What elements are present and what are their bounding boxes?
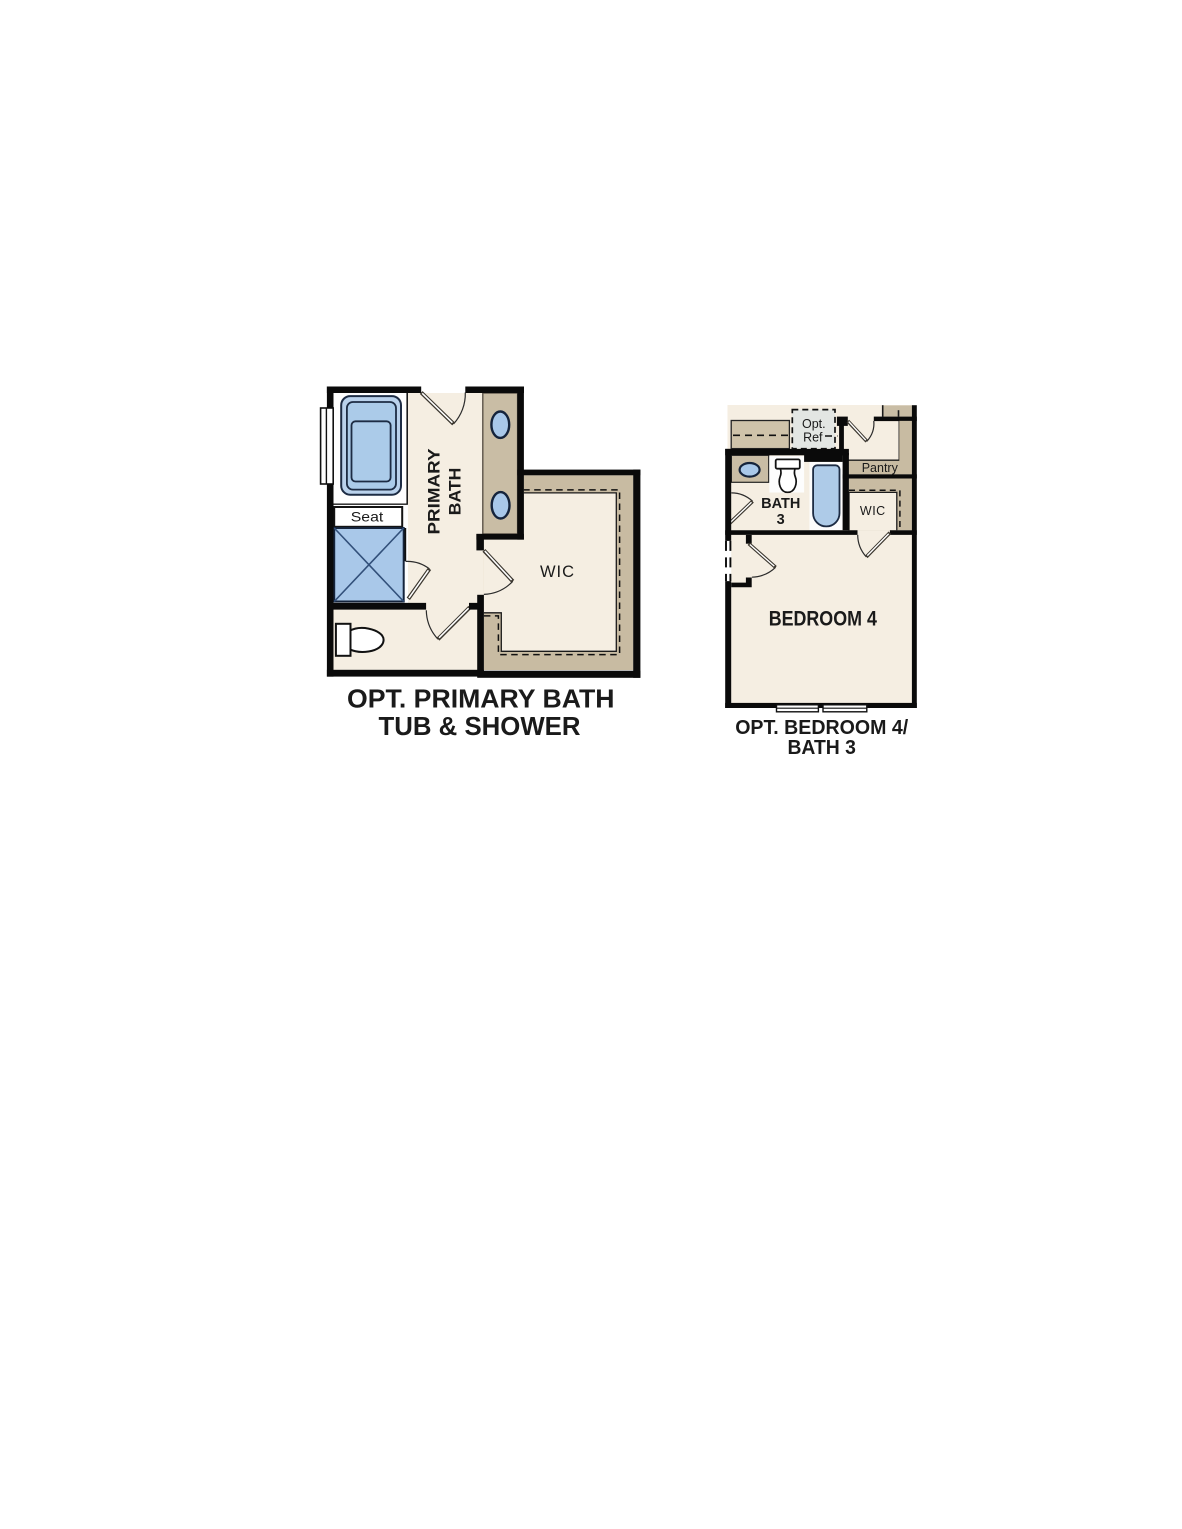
svg-text:WIC: WIC — [860, 504, 886, 518]
svg-text:BATH 3: BATH 3 — [787, 736, 856, 759]
svg-text:OPT. PRIMARY BATH: OPT. PRIMARY BATH — [347, 686, 615, 714]
svg-text:Pantry: Pantry — [862, 461, 899, 475]
svg-text:Opt.: Opt. — [802, 417, 826, 431]
svg-text:Seat: Seat — [351, 508, 384, 524]
svg-text:Ref: Ref — [803, 431, 823, 445]
svg-text:BEDROOM 4: BEDROOM 4 — [769, 608, 877, 631]
svg-text:WIC: WIC — [540, 563, 575, 581]
svg-text:TUB & SHOWER: TUB & SHOWER — [379, 713, 581, 741]
